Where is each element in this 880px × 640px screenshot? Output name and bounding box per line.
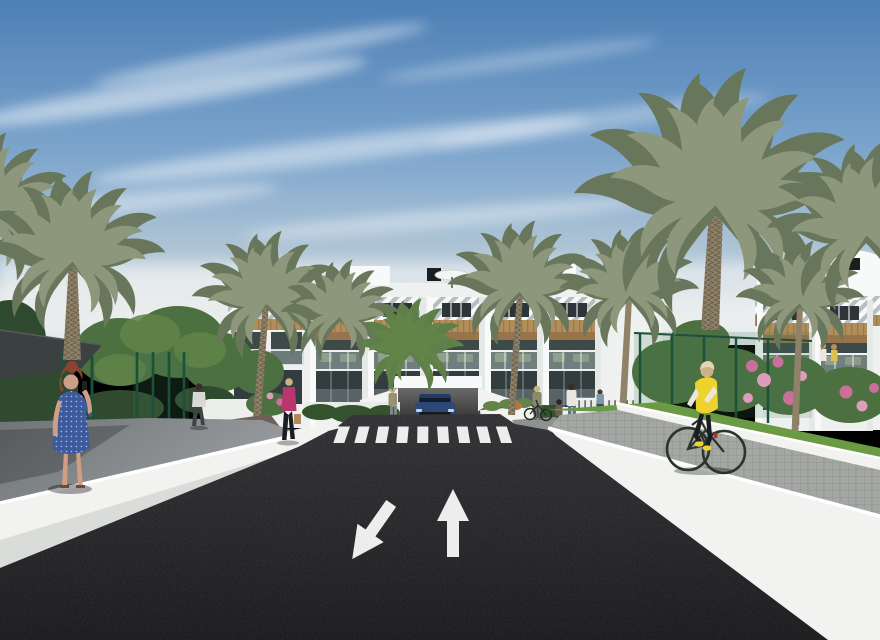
- taillight: [714, 433, 717, 438]
- scene-canvas: [0, 0, 880, 640]
- court-fence: [133, 352, 189, 422]
- render-image: [0, 0, 880, 640]
- shopping-bag: [294, 414, 301, 424]
- zebra-crosswalk: [333, 427, 512, 444]
- phone: [82, 381, 87, 390]
